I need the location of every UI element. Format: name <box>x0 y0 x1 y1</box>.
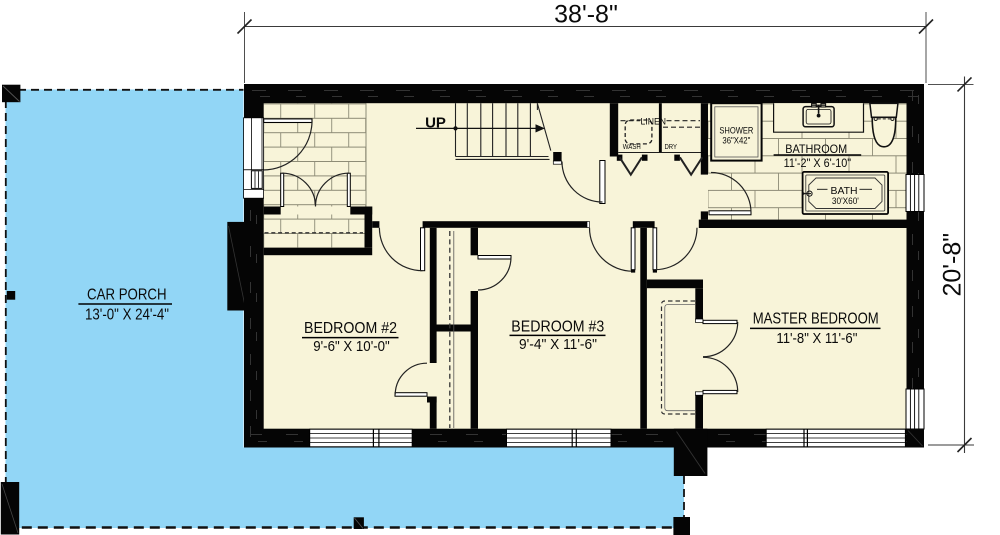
svg-text:BEDROOM #3: BEDROOM #3 <box>511 318 604 335</box>
svg-text:36"X42": 36"X42" <box>722 135 750 145</box>
svg-text:20'-8": 20'-8" <box>939 233 967 297</box>
svg-text:CAR PORCH: CAR PORCH <box>87 287 167 304</box>
svg-text:13'-0" X 24'-4": 13'-0" X 24'-4" <box>85 306 169 323</box>
svg-text:BATHROOM: BATHROOM <box>785 142 847 156</box>
svg-text:MASTER BEDROOM: MASTER BEDROOM <box>753 310 879 327</box>
svg-text:UP: UP <box>425 114 446 131</box>
svg-text:38'-8": 38'-8" <box>554 0 618 28</box>
svg-text:11'-2" X 6'-10": 11'-2" X 6'-10" <box>784 156 852 170</box>
svg-text:WASH: WASH <box>623 144 641 151</box>
svg-text:9'-4" X 11'-6": 9'-4" X 11'-6" <box>519 336 597 353</box>
svg-text:DRY: DRY <box>664 144 677 151</box>
svg-text:30'X60': 30'X60' <box>832 196 859 206</box>
svg-text:11'-8" X 11'-6": 11'-8" X 11'-6" <box>776 330 857 347</box>
svg-text:LINEN: LINEN <box>641 116 667 127</box>
svg-text:9'-6" X 10'-0": 9'-6" X 10'-0" <box>313 338 390 355</box>
svg-text:BEDROOM #2: BEDROOM #2 <box>304 320 397 337</box>
